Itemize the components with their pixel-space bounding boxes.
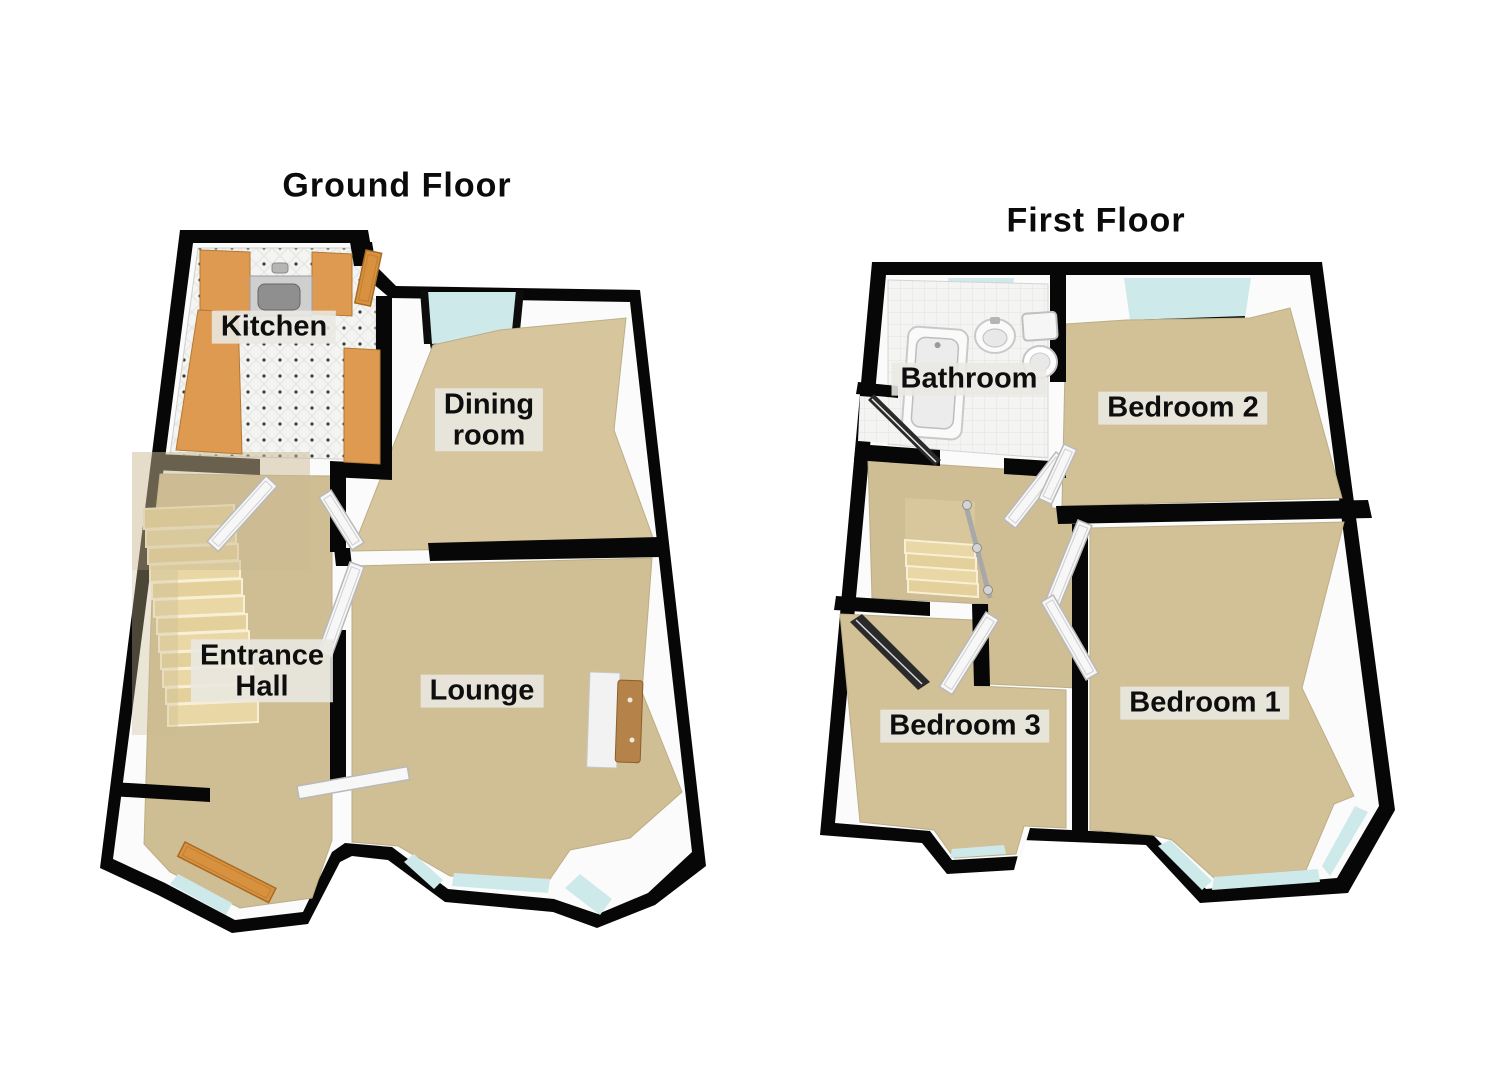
sideboard-icon (587, 672, 643, 768)
stairs-overlay (132, 452, 310, 570)
room-label-dining-room: Dining room (435, 388, 543, 451)
room-label-bathroom: Bathroom (892, 363, 1047, 396)
stairs-overlay (132, 570, 178, 735)
room-label-lounge: Lounge (421, 675, 544, 708)
room-label-bedroom-1: Bedroom 1 (1120, 687, 1289, 720)
first-floor-plan (820, 262, 1395, 903)
room-label-entrance-hall: Entrance Hall (191, 639, 333, 702)
floorplan-drawing (0, 0, 1485, 1080)
floorplan-page: Ground Floor First Floor Kitchen Dining … (0, 0, 1485, 1080)
ground-floor-plan (100, 230, 706, 933)
first-floor-title: First Floor (1006, 202, 1185, 241)
room-label-kitchen: Kitchen (212, 311, 336, 344)
ground-floor-title: Ground Floor (282, 167, 511, 206)
room-label-bedroom-2: Bedroom 2 (1098, 392, 1267, 425)
room-label-bedroom-3: Bedroom 3 (880, 710, 1049, 743)
window-icon (1124, 278, 1251, 320)
